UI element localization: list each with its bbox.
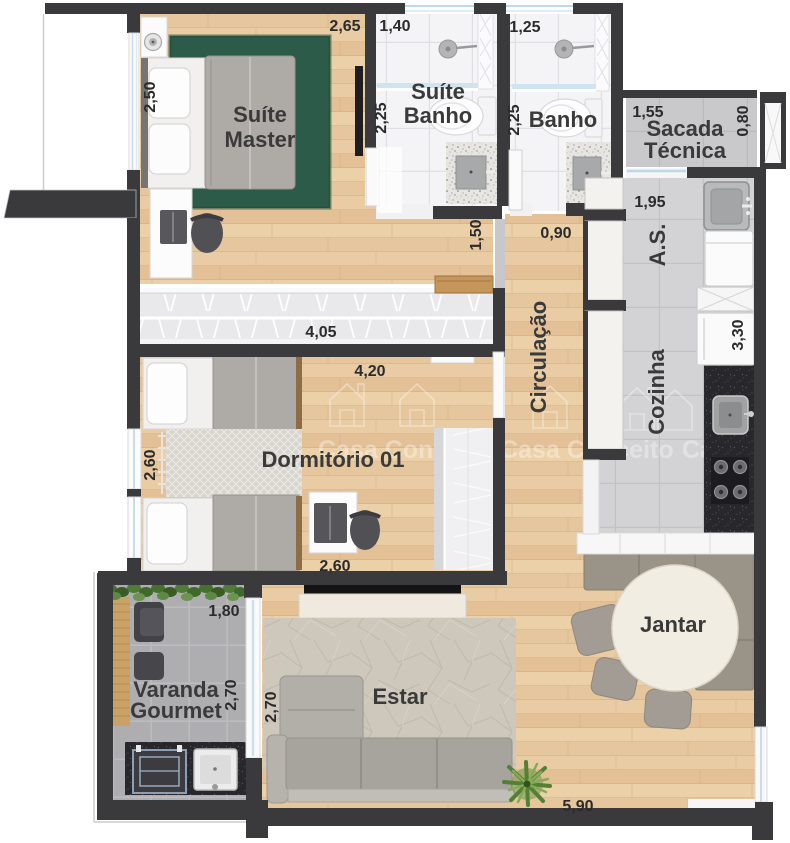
svg-text:Gourmet: Gourmet <box>130 698 222 723</box>
svg-text:4,05: 4,05 <box>305 324 336 341</box>
svg-text:Técnica: Técnica <box>644 138 727 163</box>
svg-text:0,90: 0,90 <box>540 225 571 242</box>
svg-text:3,30: 3,30 <box>730 319 747 350</box>
svg-text:Banho: Banho <box>529 107 597 132</box>
svg-text:1,40: 1,40 <box>379 18 410 35</box>
svg-text:Suíte: Suíte <box>233 102 287 127</box>
svg-text:Suíte: Suíte <box>411 79 465 104</box>
svg-text:2,60: 2,60 <box>319 558 350 575</box>
svg-text:A.S.: A.S. <box>645 224 670 267</box>
svg-text:1,55: 1,55 <box>632 104 663 121</box>
svg-text:2,50: 2,50 <box>142 81 159 112</box>
svg-text:2,70: 2,70 <box>263 691 280 722</box>
svg-text:5,90: 5,90 <box>562 798 593 815</box>
svg-text:4,20: 4,20 <box>354 363 385 380</box>
svg-text:1,80: 1,80 <box>208 603 239 620</box>
svg-text:1,95: 1,95 <box>634 194 665 211</box>
svg-text:Jantar: Jantar <box>640 612 706 637</box>
svg-text:Dormitório 01: Dormitório 01 <box>261 447 404 472</box>
svg-text:Banho: Banho <box>404 103 472 128</box>
svg-text:1,50: 1,50 <box>468 219 485 250</box>
svg-text:Estar: Estar <box>372 684 427 709</box>
svg-text:0,80: 0,80 <box>735 105 752 136</box>
svg-text:2,70: 2,70 <box>223 679 240 710</box>
svg-text:Circulação: Circulação <box>526 301 551 414</box>
svg-text:2,65: 2,65 <box>329 18 360 35</box>
svg-text:2,60: 2,60 <box>142 449 159 480</box>
svg-text:2,25: 2,25 <box>506 104 523 135</box>
svg-text:Cozinha: Cozinha <box>644 348 669 434</box>
svg-text:2,25: 2,25 <box>373 102 390 133</box>
svg-text:Master: Master <box>225 127 296 152</box>
svg-text:1,25: 1,25 <box>509 19 540 36</box>
